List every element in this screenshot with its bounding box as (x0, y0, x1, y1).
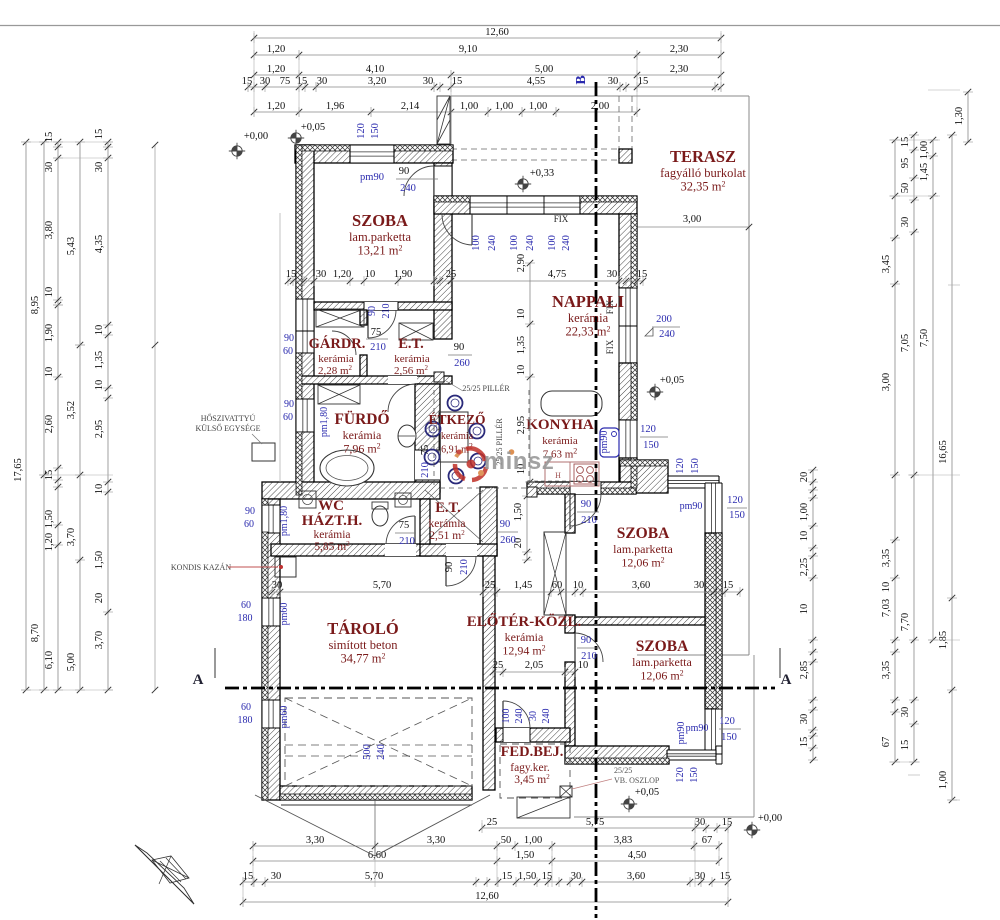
svg-text:30: 30 (260, 76, 271, 87)
svg-text:30: 30 (608, 76, 619, 87)
svg-text:pm90: pm90 (680, 501, 703, 512)
svg-text:+0,33: +0,33 (530, 168, 554, 179)
svg-text:pm1,80: pm1,80 (279, 506, 290, 536)
svg-text:200: 200 (656, 314, 672, 325)
svg-text:10: 10 (573, 580, 584, 591)
svg-text:1,90: 1,90 (394, 269, 412, 280)
svg-text:4,75: 4,75 (548, 269, 566, 280)
svg-text:pm1,80: pm1,80 (319, 407, 330, 437)
svg-text:+0,00: +0,00 (244, 131, 268, 142)
svg-text:150: 150 (729, 510, 745, 521)
svg-text:4,50: 4,50 (628, 850, 646, 861)
svg-text:12,60: 12,60 (485, 27, 509, 38)
svg-text:2,95: 2,95 (94, 420, 105, 438)
svg-text:2,56 m2: 2,56 m2 (394, 364, 429, 377)
svg-text:90: 90 (284, 333, 294, 344)
svg-text:210: 210 (581, 651, 597, 662)
svg-text:5,00: 5,00 (66, 653, 77, 671)
svg-text:kerámia: kerámia (313, 529, 350, 541)
svg-text:15: 15 (286, 269, 297, 280)
svg-text:pm60: pm60 (279, 706, 290, 729)
svg-text:VB. OSZLOP: VB. OSZLOP (614, 776, 660, 785)
svg-text:1,50: 1,50 (94, 551, 105, 569)
svg-text:75: 75 (371, 327, 382, 338)
svg-text:TÁROLÓ: TÁROLÓ (327, 619, 399, 638)
svg-text:210: 210 (581, 515, 597, 526)
svg-text:fagy.ker.: fagy.ker. (510, 762, 550, 774)
svg-text:kerámia: kerámia (505, 630, 544, 644)
svg-text:HÁZT.H.: HÁZT.H. (302, 512, 363, 529)
svg-text:2,28 m2: 2,28 m2 (318, 364, 353, 377)
svg-text:HŐSZIVATTYÚ: HŐSZIVATTYÚ (201, 413, 256, 423)
svg-text:240: 240 (541, 709, 552, 724)
svg-text:30: 30 (316, 269, 327, 280)
svg-text:5,43: 5,43 (66, 237, 77, 255)
svg-text:GÁRDR.: GÁRDR. (309, 335, 366, 352)
svg-text:10: 10 (799, 531, 810, 542)
svg-text:30: 30 (571, 871, 582, 882)
svg-text:15: 15 (723, 580, 734, 591)
svg-text:210: 210 (370, 342, 386, 353)
svg-text:12,06 m2: 12,06 m2 (640, 669, 683, 683)
svg-text:15: 15 (722, 817, 733, 828)
svg-text:3,80: 3,80 (44, 221, 55, 239)
svg-text:15: 15 (94, 129, 105, 140)
svg-text:3,20: 3,20 (368, 76, 386, 87)
svg-text:ÉTKEZŐ: ÉTKEZŐ (428, 412, 485, 427)
svg-text:15: 15 (297, 76, 308, 87)
svg-text:120: 120 (727, 495, 743, 506)
svg-text:30: 30 (695, 817, 706, 828)
svg-text:20: 20 (94, 593, 105, 604)
svg-text:15: 15 (637, 269, 648, 280)
svg-text:KONDIS KAZÁN: KONDIS KAZÁN (171, 562, 231, 572)
svg-text:FIX: FIX (605, 339, 615, 354)
svg-text:1,00: 1,00 (529, 101, 547, 112)
svg-text:+0,00: +0,00 (758, 813, 782, 824)
svg-text:3,52: 3,52 (66, 401, 77, 419)
svg-text:30: 30 (272, 580, 283, 591)
svg-text:30: 30 (694, 580, 705, 591)
svg-text:1,30: 1,30 (954, 107, 965, 125)
svg-text:3,45 m2: 3,45 m2 (514, 773, 550, 786)
svg-text:1,50: 1,50 (513, 503, 524, 521)
svg-text:1,20: 1,20 (44, 533, 55, 551)
svg-text:12,60: 12,60 (475, 891, 499, 902)
svg-text:6,10: 6,10 (44, 651, 55, 669)
svg-text:3,35: 3,35 (881, 549, 892, 567)
svg-text:9,10: 9,10 (459, 44, 477, 55)
svg-text:150: 150 (690, 458, 701, 474)
svg-text:15: 15 (502, 871, 513, 882)
svg-text:120: 120 (640, 424, 656, 435)
svg-text:10: 10 (799, 604, 810, 615)
svg-text:SZOBA: SZOBA (352, 211, 408, 230)
svg-text:120: 120 (675, 458, 686, 474)
svg-text:1,50: 1,50 (518, 871, 536, 882)
svg-text:2,51 m2: 2,51 m2 (429, 529, 465, 542)
svg-text:3,30: 3,30 (306, 835, 324, 846)
svg-text:15: 15 (243, 871, 254, 882)
svg-text:20: 20 (799, 472, 810, 483)
svg-text:FIX: FIX (605, 299, 615, 314)
svg-text:15: 15 (242, 76, 253, 87)
svg-text:15: 15 (452, 76, 463, 87)
svg-text:kerámia: kerámia (428, 518, 465, 530)
svg-text:5,85 m2: 5,85 m2 (314, 540, 350, 553)
svg-text:1,50: 1,50 (44, 510, 55, 528)
svg-text:3,00: 3,00 (683, 214, 701, 225)
svg-text:kerámia: kerámia (542, 435, 578, 447)
svg-text:25: 25 (485, 580, 496, 591)
svg-text:7,05: 7,05 (900, 334, 911, 352)
svg-text:SZOBA: SZOBA (617, 525, 670, 542)
svg-text:60: 60 (552, 580, 563, 591)
svg-text:+0,05: +0,05 (660, 375, 684, 386)
svg-text:+0,05: +0,05 (635, 787, 659, 798)
svg-text:30: 30 (900, 707, 911, 718)
svg-text:30: 30 (271, 871, 282, 882)
svg-text:10: 10 (516, 365, 527, 376)
svg-text:1,00: 1,00 (524, 835, 542, 846)
svg-text:4,55: 4,55 (527, 76, 545, 87)
svg-text:KÜLSŐ EGYSÉGE: KÜLSŐ EGYSÉGE (195, 423, 260, 433)
svg-text:1,00: 1,00 (799, 503, 810, 521)
svg-text:3,70: 3,70 (94, 631, 105, 649)
svg-text:10: 10 (516, 309, 527, 320)
svg-text:60: 60 (283, 412, 293, 423)
svg-text:2,25: 2,25 (799, 558, 810, 576)
svg-text:210: 210 (459, 559, 470, 575)
svg-text:25: 25 (487, 817, 498, 828)
svg-text:100: 100 (501, 709, 512, 724)
svg-text:60: 60 (244, 519, 254, 530)
svg-text:kerámia: kerámia (343, 428, 382, 442)
svg-text:2,90: 2,90 (516, 254, 527, 272)
svg-text:3,60: 3,60 (627, 871, 645, 882)
svg-text:1,45: 1,45 (514, 580, 532, 591)
svg-text:25/25 PILLÉR: 25/25 PILLÉR (462, 383, 510, 393)
svg-text:1,90: 1,90 (44, 324, 55, 342)
svg-text:2,30: 2,30 (670, 44, 688, 55)
svg-text:95: 95 (900, 158, 911, 169)
svg-text:10: 10 (44, 287, 55, 298)
svg-text:240: 240 (525, 235, 536, 251)
svg-text:90: 90 (500, 519, 511, 530)
svg-text:4,35: 4,35 (94, 235, 105, 253)
svg-text:240: 240 (514, 709, 525, 724)
svg-text:120: 120 (356, 123, 367, 139)
svg-text:15: 15 (44, 132, 55, 143)
svg-text:SZOBA: SZOBA (636, 638, 689, 655)
svg-text:B: B (574, 75, 589, 84)
svg-text:67: 67 (881, 737, 892, 748)
svg-text:15: 15 (542, 871, 553, 882)
svg-text:90: 90 (454, 342, 465, 353)
svg-text:60: 60 (283, 346, 293, 357)
svg-text:12,06 m2: 12,06 m2 (621, 556, 664, 570)
svg-text:60: 60 (241, 702, 251, 713)
svg-text:3,70: 3,70 (66, 528, 77, 546)
svg-text:30: 30 (94, 162, 105, 173)
svg-text:8,95: 8,95 (30, 296, 41, 314)
svg-text:75: 75 (280, 76, 291, 87)
svg-text:5,00: 5,00 (535, 64, 553, 75)
svg-text:1,20: 1,20 (267, 101, 285, 112)
svg-text:180: 180 (238, 715, 253, 726)
svg-text:KONYHA: KONYHA (526, 417, 594, 433)
svg-text:90: 90 (581, 635, 592, 646)
svg-text:150: 150 (721, 732, 737, 743)
svg-text:lam.parketta: lam.parketta (632, 655, 692, 669)
svg-text:5,70: 5,70 (373, 580, 391, 591)
svg-text:12,94 m2: 12,94 m2 (502, 644, 545, 658)
svg-text:H: H (555, 471, 561, 480)
svg-text:67: 67 (702, 835, 713, 846)
svg-text:30: 30 (799, 714, 810, 725)
svg-text:ELŐTÉR-KÖZL.: ELŐTÉR-KÖZL. (467, 613, 582, 630)
svg-text:+0,05: +0,05 (301, 122, 325, 133)
svg-text:1,00: 1,00 (938, 771, 949, 789)
svg-text:500: 500 (362, 744, 373, 760)
svg-text:1,35: 1,35 (94, 351, 105, 369)
svg-text:90: 90 (367, 306, 378, 316)
svg-text:10: 10 (365, 269, 376, 280)
svg-text:3,83: 3,83 (614, 835, 632, 846)
svg-text:13,21 m2: 13,21 m2 (358, 244, 403, 258)
svg-text:1,00: 1,00 (460, 101, 478, 112)
svg-text:240: 240 (659, 329, 675, 340)
svg-text:pm60: pm60 (279, 603, 290, 626)
svg-text:2,60: 2,60 (44, 415, 55, 433)
svg-text:17,65: 17,65 (13, 458, 24, 482)
svg-text:10: 10 (44, 367, 55, 378)
svg-text:E.T.: E.T. (398, 336, 424, 352)
svg-text:25/25: 25/25 (614, 766, 632, 775)
svg-text:30: 30 (44, 162, 55, 173)
svg-text:240: 240 (487, 235, 498, 251)
svg-text:15: 15 (900, 740, 911, 751)
svg-text:E.T.: E.T. (435, 500, 461, 516)
svg-text:pm90: pm90 (686, 723, 709, 734)
svg-text:30: 30 (528, 711, 539, 721)
svg-text:1,20: 1,20 (333, 269, 351, 280)
svg-text:10: 10 (94, 325, 105, 336)
svg-text:WC: WC (318, 498, 344, 514)
svg-text:30: 30 (423, 76, 434, 87)
svg-text:90: 90 (399, 166, 410, 177)
svg-text:120: 120 (675, 767, 686, 783)
svg-text:75: 75 (399, 520, 410, 531)
svg-text:3,45: 3,45 (881, 255, 892, 273)
svg-text:22,33 m2: 22,33 m2 (566, 325, 611, 339)
svg-text:60: 60 (241, 600, 251, 611)
svg-text:2,14: 2,14 (401, 101, 420, 112)
svg-text:30: 30 (695, 871, 706, 882)
svg-text:kerámia: kerámia (568, 311, 609, 325)
svg-text:5,70: 5,70 (365, 871, 383, 882)
svg-text:150: 150 (643, 440, 659, 451)
svg-text:100: 100 (547, 235, 558, 251)
svg-text:240: 240 (561, 235, 572, 251)
svg-text:10: 10 (94, 380, 105, 391)
svg-text:260: 260 (500, 535, 516, 546)
svg-text:7,50: 7,50 (919, 329, 930, 347)
svg-text:15: 15 (900, 137, 911, 148)
svg-text:90: 90 (284, 399, 294, 410)
svg-text:simított beton: simított beton (328, 638, 398, 652)
svg-text:3,35: 3,35 (881, 661, 892, 679)
svg-text:90: 90 (245, 506, 255, 517)
svg-text:FIX: FIX (554, 214, 569, 224)
svg-text:210: 210 (399, 536, 415, 547)
svg-text:pm90: pm90 (599, 431, 610, 454)
svg-text:100: 100 (471, 235, 482, 251)
svg-text:15: 15 (720, 871, 731, 882)
svg-text:240: 240 (400, 183, 416, 194)
svg-text:210: 210 (381, 304, 392, 319)
svg-text:kerámia: kerámia (441, 431, 474, 442)
svg-text:2,85: 2,85 (799, 661, 810, 679)
svg-text:260: 260 (454, 358, 470, 369)
svg-text:7,96 m2: 7,96 m2 (343, 442, 380, 456)
svg-text:90: 90 (444, 562, 455, 573)
svg-text:150: 150 (689, 767, 700, 783)
svg-text:120: 120 (719, 716, 735, 727)
svg-text:150: 150 (370, 123, 381, 139)
svg-text:50: 50 (501, 835, 512, 846)
svg-text:1,20: 1,20 (267, 44, 285, 55)
svg-text:16,65: 16,65 (938, 440, 949, 464)
svg-text:210: 210 (420, 462, 431, 478)
svg-text:3,30: 3,30 (427, 835, 445, 846)
svg-text:minsz: minsz (484, 448, 555, 475)
svg-text:240: 240 (376, 744, 387, 760)
svg-text:10: 10 (94, 484, 105, 495)
svg-text:2,00: 2,00 (591, 101, 609, 112)
svg-text:100: 100 (509, 235, 520, 251)
svg-text:1,00: 1,00 (495, 101, 513, 112)
svg-text:10: 10 (881, 582, 892, 593)
svg-text:75: 75 (420, 445, 431, 456)
svg-text:7,03: 7,03 (881, 599, 892, 617)
svg-text:A: A (193, 672, 204, 688)
svg-text:lam.parketta: lam.parketta (613, 542, 673, 556)
svg-text:fagyálló burkolat: fagyálló burkolat (660, 166, 746, 180)
svg-text:180: 180 (238, 613, 253, 624)
svg-text:A: A (781, 672, 792, 688)
svg-text:7,70: 7,70 (900, 613, 911, 631)
svg-text:FED.BEJ.: FED.BEJ. (501, 744, 564, 760)
svg-text:2,30: 2,30 (670, 64, 688, 75)
svg-text:lam.parketta: lam.parketta (349, 230, 412, 244)
svg-text:1,50: 1,50 (516, 850, 534, 861)
svg-text:8,70: 8,70 (30, 624, 41, 642)
svg-text:4,10: 4,10 (366, 64, 384, 75)
svg-text:1,96: 1,96 (326, 101, 344, 112)
svg-text:15: 15 (799, 737, 810, 748)
svg-text:FÜRDŐ: FÜRDŐ (334, 411, 389, 428)
svg-text:2,05: 2,05 (525, 660, 543, 671)
svg-text:1,20: 1,20 (267, 64, 285, 75)
svg-text:15: 15 (638, 76, 649, 87)
svg-text:34,77 m2: 34,77 m2 (341, 652, 386, 666)
svg-text:2,95: 2,95 (516, 416, 527, 434)
svg-text:TERASZ: TERASZ (670, 147, 736, 166)
svg-text:50: 50 (900, 183, 911, 194)
svg-text:3,00: 3,00 (881, 373, 892, 391)
svg-text:1,45: 1,45 (919, 163, 930, 181)
svg-text:25: 25 (493, 660, 504, 671)
svg-text:1,00: 1,00 (919, 141, 930, 159)
svg-text:30: 30 (317, 76, 328, 87)
svg-text:30: 30 (607, 269, 618, 280)
svg-text:32,35 m2: 32,35 m2 (681, 180, 726, 194)
svg-text:1,35: 1,35 (516, 336, 527, 354)
svg-text:3,60: 3,60 (632, 580, 650, 591)
svg-text:pm90: pm90 (360, 172, 384, 183)
svg-text:25: 25 (446, 269, 457, 280)
svg-text:30: 30 (900, 217, 911, 228)
svg-text:90: 90 (581, 499, 592, 510)
